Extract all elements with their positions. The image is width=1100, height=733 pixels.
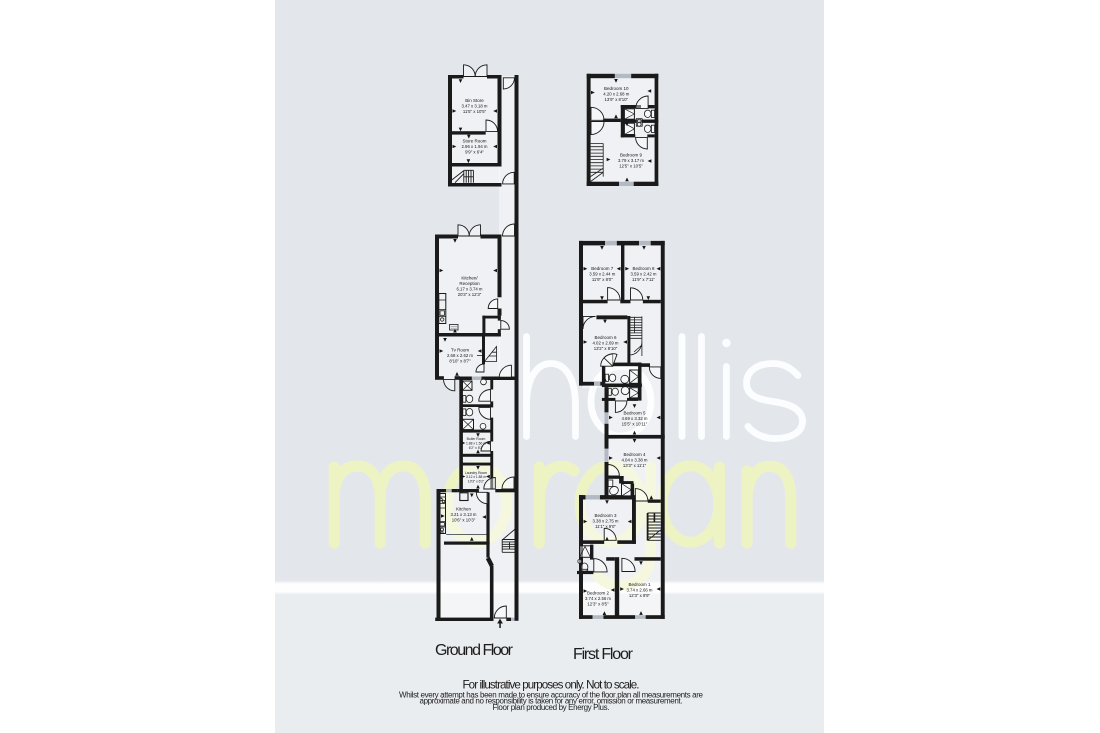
- svg-text:Bedroom 8: Bedroom 8: [632, 266, 655, 271]
- svg-text:11'5" x 10'5": 11'5" x 10'5": [463, 109, 487, 114]
- svg-text:10'6" x 10'3": 10'6" x 10'3": [452, 518, 476, 523]
- svg-text:First Floor: First Floor: [573, 646, 634, 663]
- svg-text:4.69 x 3.32 m: 4.69 x 3.32 m: [621, 416, 647, 421]
- svg-text:20'3" x 12'3": 20'3" x 12'3": [458, 292, 482, 297]
- svg-text:3.38 x 2.75 m: 3.38 x 2.75 m: [592, 519, 618, 524]
- svg-text:Bedroom 5: Bedroom 5: [623, 410, 646, 415]
- svg-text:Tv Room: Tv Room: [451, 348, 470, 353]
- svg-text:11'9" x 7'11": 11'9" x 7'11": [632, 277, 655, 282]
- svg-text:3.74 x 2.56 m: 3.74 x 2.56 m: [585, 596, 611, 601]
- svg-text:4.04 x 3.38 m: 4.04 x 3.38 m: [621, 457, 647, 462]
- svg-text:1.88 x 1.56 m: 1.88 x 1.56 m: [466, 441, 486, 445]
- svg-text:Kitchen/: Kitchen/: [461, 275, 478, 280]
- svg-text:11'9" x 8'0": 11'9" x 8'0": [592, 277, 613, 282]
- svg-text:8'10" x 8'7": 8'10" x 8'7": [449, 359, 471, 364]
- svg-text:Bedroom 3: Bedroom 3: [594, 513, 617, 518]
- svg-text:6'2" x 5'2": 6'2" x 5'2": [469, 446, 484, 450]
- svg-text:Reception: Reception: [459, 281, 480, 286]
- svg-text:10'3" x 6'2": 10'3" x 6'2": [468, 480, 485, 484]
- svg-text:Bedroom 4: Bedroom 4: [623, 452, 646, 457]
- svg-text:Bin Store: Bin Store: [465, 98, 484, 103]
- svg-text:Bedroom 1: Bedroom 1: [628, 582, 651, 587]
- svg-text:Bedroom 10: Bedroom 10: [604, 86, 629, 91]
- svg-text:2.68 x 2.62 m: 2.68 x 2.62 m: [447, 353, 473, 358]
- svg-text:3.59 x 2.42 m: 3.59 x 2.42 m: [630, 272, 656, 277]
- svg-text:9'9" x 6'4": 9'9" x 6'4": [465, 150, 484, 155]
- svg-text:Boiler Room: Boiler Room: [467, 437, 486, 441]
- svg-text:3.21 x 3.13 m: 3.21 x 3.13 m: [450, 512, 476, 517]
- svg-text:12'3" x 8'5": 12'3" x 8'5": [587, 602, 609, 607]
- svg-text:3.74 x 2.66 m: 3.74 x 2.66 m: [626, 587, 652, 592]
- svg-text:3.59 x 2.44 m: 3.59 x 2.44 m: [589, 272, 615, 277]
- svg-text:Bedroom 9: Bedroom 9: [620, 153, 643, 158]
- svg-text:Laundry Room: Laundry Room: [465, 471, 487, 475]
- svg-text:Floor plan produced by Energy: Floor plan produced by Energy Plus.: [493, 703, 610, 712]
- svg-text:4.20 x 2.68 m: 4.20 x 2.68 m: [603, 91, 629, 96]
- svg-text:Bedroom 7: Bedroom 7: [591, 266, 614, 271]
- svg-text:3.79 x 3.17 m: 3.79 x 3.17 m: [618, 158, 644, 163]
- svg-text:3.12 x 1.88 m: 3.12 x 1.88 m: [466, 475, 486, 479]
- svg-text:Store Room: Store Room: [462, 139, 486, 144]
- svg-text:4.02 x 2.69 m: 4.02 x 2.69 m: [592, 340, 618, 345]
- svg-text:13'3" x 11'1": 13'3" x 11'1": [623, 463, 647, 468]
- svg-text:6.17 x 3.74 m: 6.17 x 3.74 m: [456, 286, 482, 291]
- svg-text:Bedroom 6: Bedroom 6: [594, 335, 617, 340]
- svg-text:13'2" x 8'10": 13'2" x 8'10": [594, 346, 618, 351]
- svg-text:12'5" x 10'5": 12'5" x 10'5": [619, 164, 643, 169]
- svg-text:2.96 x 1.94 m: 2.96 x 1.94 m: [461, 144, 487, 149]
- svg-text:Bedroom 2: Bedroom 2: [587, 591, 610, 596]
- svg-text:Kitchen: Kitchen: [456, 507, 472, 512]
- svg-text:3.47 x 3.18 m: 3.47 x 3.18 m: [461, 103, 487, 108]
- svg-text:11'1" x 9'0": 11'1" x 9'0": [595, 524, 616, 529]
- svg-text:13'9" x 8'10": 13'9" x 8'10": [605, 97, 629, 102]
- svg-text:Ground Floor: Ground Floor: [435, 642, 514, 659]
- svg-text:15'5" x 10'11": 15'5" x 10'11": [622, 421, 648, 426]
- svg-text:12'3" x 8'9": 12'3" x 8'9": [629, 593, 651, 598]
